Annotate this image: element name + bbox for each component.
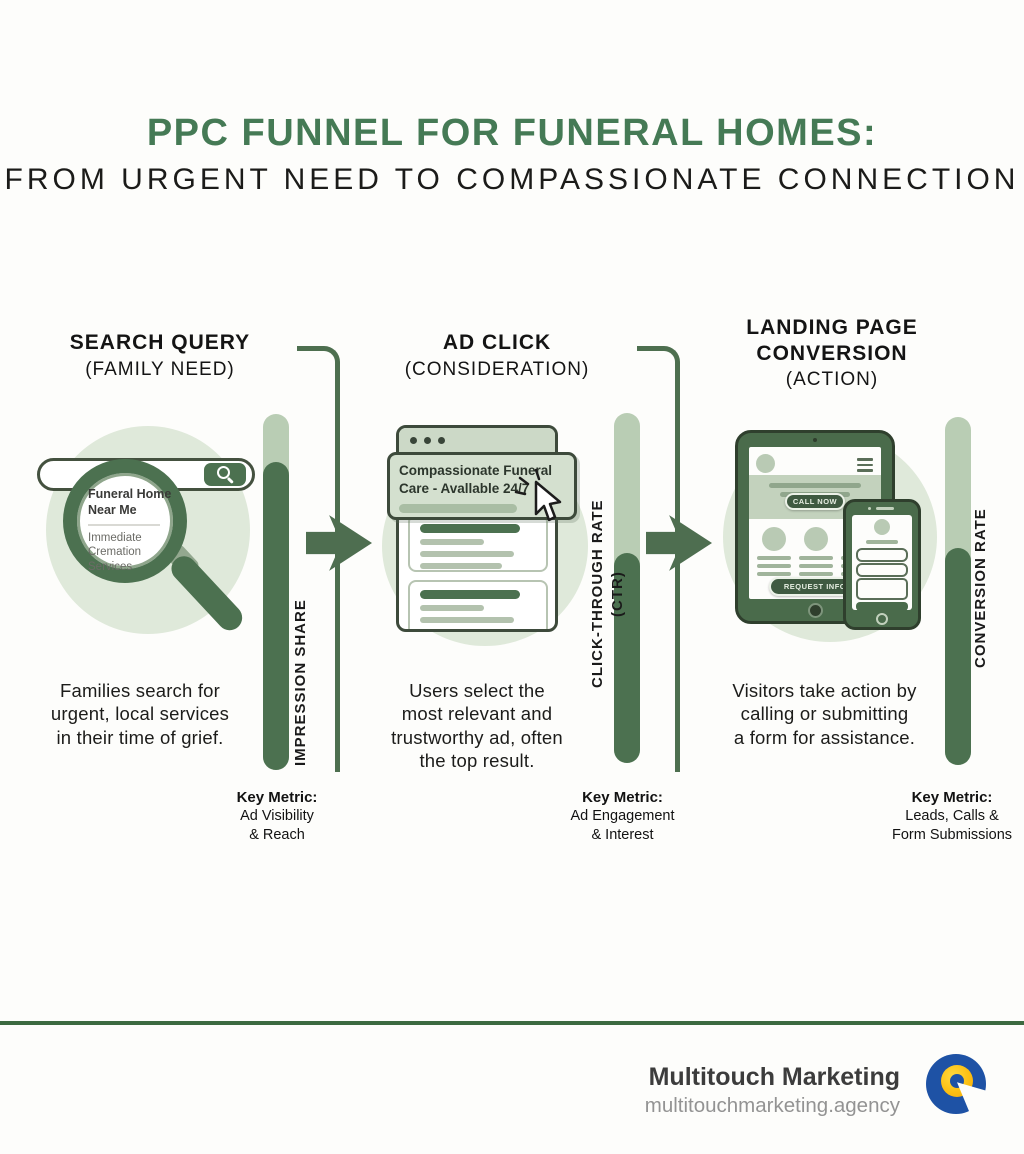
browser-dot-icon: [410, 437, 417, 444]
search-result-card: [408, 580, 548, 632]
key-metric-title: Key Metric:: [878, 789, 1024, 806]
hamburger-menu-icon: [857, 458, 873, 475]
call-now-button: CALL NOW: [785, 493, 845, 510]
stage1-subheading: (FAMILY NEED): [30, 359, 290, 381]
search-query-divider: [88, 524, 160, 526]
key-metric-title: Key Metric:: [212, 789, 342, 806]
stage2-key-metric: Key Metric: Ad Engagement & Interest: [555, 789, 690, 845]
form-text-line: [866, 540, 898, 544]
feature-circle-icon: [804, 527, 828, 551]
feature-circle-icon: [762, 527, 786, 551]
stage1-key-metric: Key Metric: Ad Visibility & Reach: [212, 789, 342, 845]
result-text-line: [420, 629, 502, 632]
browser-title-bar: [399, 428, 555, 455]
impression-share-bar-fill: [263, 462, 289, 770]
ctr-label: CLICK-THROUGH RATE (CTR): [588, 478, 628, 710]
browser-dot-icon: [438, 437, 445, 444]
search-query-primary: Funeral Home Near Me: [88, 486, 180, 519]
stage1-heading: SEARCH QUERY: [30, 330, 290, 356]
feature-column: [755, 527, 793, 576]
form-submit-button: [856, 602, 908, 610]
stage1-header: SEARCH QUERY (FAMILY NEED): [30, 330, 290, 381]
hero-text-line: [769, 483, 861, 488]
phone-illustration: [843, 499, 921, 630]
phone-screen: [852, 515, 912, 610]
impression-share-bar: [263, 414, 289, 770]
phone-speaker-icon: [876, 507, 894, 510]
tablet-camera-icon: [813, 438, 817, 442]
key-metric-detail: Leads, Calls & Form Submissions: [878, 807, 1024, 845]
stage2-subheading: (CONSIDERATION): [377, 359, 617, 381]
impression-share-label: IMPRESSION SHARE: [291, 594, 311, 772]
browser-dot-icon: [424, 437, 431, 444]
search-button-illustration: [204, 463, 246, 486]
result-text-line: [420, 617, 514, 623]
result-text-line: [420, 539, 484, 545]
conversion-rate-label: CONVERSION RATE: [971, 506, 991, 670]
connector-bracket-2: [637, 346, 680, 772]
form-input-field: [856, 548, 908, 562]
stage2-header: AD CLICK (CONSIDERATION): [377, 330, 617, 381]
key-metric-detail: Ad Engagement & Interest: [555, 807, 690, 845]
tablet-home-button-icon: [808, 603, 823, 618]
key-metric-title: Key Metric:: [555, 789, 690, 806]
footer-website: multitouchmarketing.agency: [645, 1094, 900, 1118]
search-icon: [217, 466, 230, 479]
key-metric-detail: Ad Visibility & Reach: [212, 807, 342, 845]
result-text-line: [420, 563, 502, 569]
phone-home-button-icon: [876, 613, 888, 625]
phone-camera-icon: [868, 507, 871, 510]
result-text-line: [420, 605, 484, 611]
form-input-field: [856, 563, 908, 577]
ad-text-line: [399, 504, 517, 513]
stage3-description: Visitors take action by calling or submi…: [702, 679, 947, 749]
logo-avatar-icon: [756, 454, 775, 473]
stage3-key-metric: Key Metric: Leads, Calls & Form Submissi…: [878, 789, 1024, 845]
search-query-text: Funeral Home Near Me Immediate Cremation…: [88, 486, 180, 575]
search-query-secondary: Immediate Cremation Services: [88, 531, 180, 576]
cursor-click-icon: [512, 468, 568, 528]
result-title-bar: [420, 524, 520, 533]
result-title-bar: [420, 590, 520, 599]
stage3-subheading: (ACTION): [712, 369, 952, 391]
stage3-header: LANDING PAGE CONVERSION (ACTION): [712, 315, 952, 391]
form-textarea-field: [856, 578, 908, 600]
stage1-description: Families search for urgent, local servic…: [20, 679, 260, 749]
footer-divider: [0, 1021, 1024, 1025]
page-subtitle: FROM URGENT NEED TO COMPASSIONATE CONNEC…: [0, 163, 1024, 197]
footer-brand-name: Multitouch Marketing: [649, 1063, 900, 1092]
stage3-heading: LANDING PAGE CONVERSION: [712, 315, 952, 366]
stage2-heading: AD CLICK: [377, 330, 617, 356]
conversion-rate-bar-fill: [945, 548, 971, 765]
multitouch-marketing-logo-icon: [926, 1051, 988, 1119]
conversion-rate-bar: [945, 417, 971, 765]
feature-column: [797, 527, 835, 576]
form-avatar-icon: [874, 519, 890, 535]
page-title: PPC FUNNEL FOR FUNERAL HOMES:: [0, 112, 1024, 155]
result-text-line: [420, 551, 514, 557]
infographic-canvas: PPC FUNNEL FOR FUNERAL HOMES: FROM URGEN…: [0, 0, 1024, 1154]
stage2-description: Users select the most relevant and trust…: [357, 679, 597, 772]
